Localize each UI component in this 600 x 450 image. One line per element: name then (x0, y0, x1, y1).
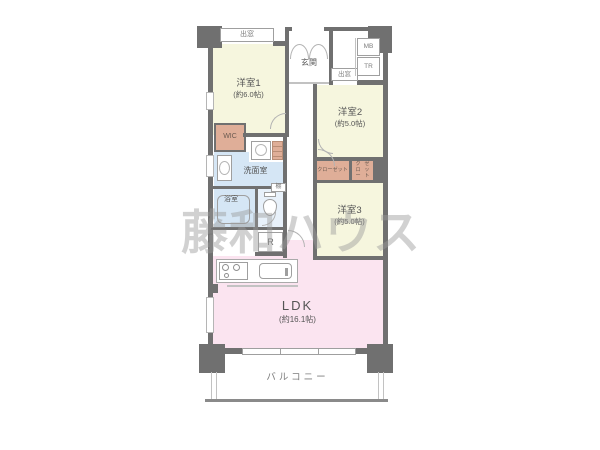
wall-closet-right-block (373, 161, 383, 183)
wall-fridge-bottom (255, 252, 285, 256)
floor-plan: 出窓 出窓 MB TR R 棚 洋室1 (約6.0帖) (0, 0, 600, 450)
room3-name-label: 洋室3 (316, 206, 383, 217)
balcony-rail-right-1 (378, 372, 379, 400)
washroom-label: 洗面室 (228, 166, 283, 176)
bay-window-room2-label: 出窓 (331, 69, 358, 80)
window-ldk-balcony (242, 348, 356, 355)
kitchen-faucet-icon (285, 268, 288, 276)
stove-burner-1 (222, 264, 229, 271)
room1-name-label: 洋室1 (212, 79, 285, 90)
bay-window-room1-label: 出窓 (220, 29, 274, 41)
laundry-shelf-line-1 (273, 146, 282, 147)
meter-box-label: MB (357, 38, 380, 56)
entrance-label: 玄関 (289, 57, 329, 68)
wall-bath-toilet (255, 189, 258, 229)
window-ldk-balcony-mullion-2 (318, 348, 319, 355)
room2-name-label: 洋室2 (317, 108, 383, 119)
shelf-label: 棚 (271, 183, 286, 192)
balcony-rail-right-2 (383, 372, 384, 400)
stove-burner-2 (233, 264, 240, 271)
closet-small-label: クロー ゼット (354, 162, 372, 178)
room1-size-label: (約6.0帖) (212, 91, 285, 100)
wall-corridor-left (283, 133, 287, 258)
ldk-name-label: LDK (212, 299, 383, 314)
laundry-shelf-line-3 (273, 156, 282, 157)
wall-bottom-left (208, 348, 244, 354)
laundry-shelf-line-2 (273, 151, 282, 152)
trunk-room-label: TR (357, 57, 380, 76)
toilet-tank (264, 192, 276, 197)
porch-divider-line (355, 38, 356, 76)
wall-porch-top (333, 27, 370, 31)
closet-large-label: クローゼット (318, 162, 346, 178)
closet-small-line1: クロー (354, 161, 363, 179)
wall-closet-divider (349, 161, 352, 180)
room2-size-label: (約5.0帖) (317, 120, 383, 129)
wall-bottom-right (354, 348, 388, 354)
stove-burner-3 (224, 273, 229, 278)
wall-room3-bottom (313, 256, 384, 260)
entrance-step-line (289, 82, 329, 84)
window-ldk-balcony-mullion-1 (280, 348, 281, 355)
wall-bath-bottom (212, 227, 285, 230)
balcony-rail-left-1 (211, 372, 212, 400)
closet-small-line2: ゼット (363, 161, 372, 179)
window-washroom-left (206, 155, 214, 177)
wall-right-outer (383, 50, 388, 351)
balcony-label: バルコニー (240, 372, 355, 385)
kitchen-counter-edge (227, 285, 298, 287)
balcony-rail-left-2 (216, 372, 217, 400)
room3-size-label: (約5.0帖) (316, 218, 383, 227)
wall-kitchen-tag (208, 284, 218, 293)
refrigerator-label: R (258, 232, 283, 252)
wic-label: WIC (214, 123, 246, 152)
wall-room2-top-right (357, 80, 385, 85)
washing-machine-drum-icon (255, 144, 267, 156)
balcony-rail-front (205, 399, 388, 402)
wall-closet-bottom (316, 180, 373, 183)
ldk-door-arc (288, 230, 305, 247)
bathroom-label: 浴室 (214, 196, 248, 205)
ldk-size-label: (約16.1帖) (212, 315, 383, 325)
